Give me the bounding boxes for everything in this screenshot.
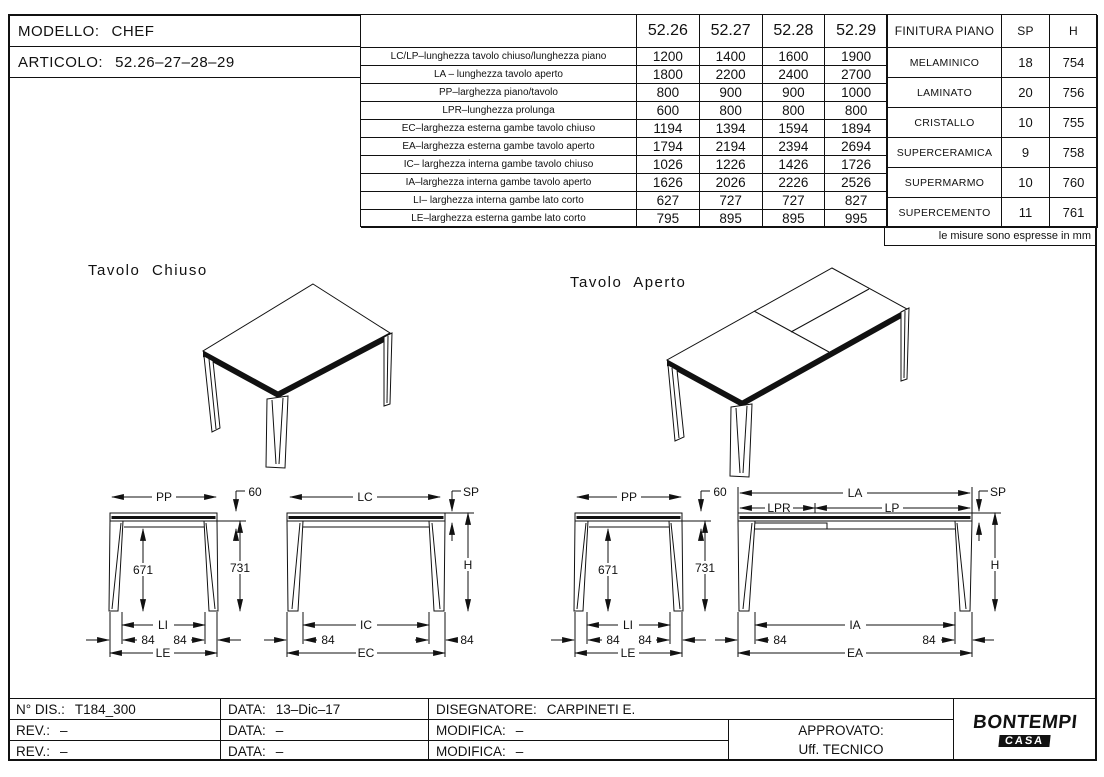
finish-name-cell: SUPERCERAMICA bbox=[888, 138, 1002, 168]
spec-value-cell: 1194 bbox=[637, 120, 700, 138]
finish-col-header: FINITURA PIANO bbox=[888, 15, 1002, 48]
date-label: DATA: bbox=[228, 702, 266, 717]
finish-col-header: SP bbox=[1002, 15, 1050, 48]
finish-sp-cell: 20 bbox=[1002, 78, 1050, 108]
spec-value-cell: 600 bbox=[637, 102, 700, 120]
spec-col-header: 52.29 bbox=[825, 15, 888, 48]
spec-row-label: LE–larghezza esterna gambe lato corto bbox=[361, 210, 637, 228]
spec-row-label: LC/LP–lunghezza tavolo chiuso/lunghezza … bbox=[361, 48, 637, 66]
spec-value-cell: 900 bbox=[763, 84, 826, 102]
spec-value-cell: 1200 bbox=[637, 48, 700, 66]
spec-row-label: PP–larghezza piano/tavolo bbox=[361, 84, 637, 102]
approved-cell: APPROVATO: Uff. TECNICO bbox=[729, 720, 953, 761]
spec-value-cell: 1394 bbox=[700, 120, 763, 138]
units-note: le misure sono espresse in mm bbox=[884, 227, 1097, 246]
spec-value-cell: 827 bbox=[825, 192, 888, 210]
finish-sp-cell: 10 bbox=[1002, 168, 1050, 198]
articolo-label: ARTICOLO: bbox=[18, 54, 103, 71]
modello-value: CHEF bbox=[112, 23, 155, 40]
open-table-title: Tavolo Aperto bbox=[570, 274, 686, 291]
finish-h-cell: 755 bbox=[1050, 108, 1098, 138]
finish-sp-cell: 9 bbox=[1002, 138, 1050, 168]
date-cell: DATA: 13–Dic–17 bbox=[222, 699, 428, 719]
spec-value-cell: 1800 bbox=[637, 66, 700, 84]
rev1-cell: REV.: – bbox=[10, 720, 220, 740]
finish-col-header: H bbox=[1050, 15, 1098, 48]
spec-header-empty bbox=[361, 15, 637, 48]
drawing-number-cell: N° DIS.: T184_300 bbox=[10, 699, 220, 719]
spec-value-cell: 1400 bbox=[700, 48, 763, 66]
brand-logo: BONTEMPI CASA bbox=[954, 699, 1096, 760]
finish-sp-cell: 18 bbox=[1002, 48, 1050, 78]
finish-name-cell: CRISTALLO bbox=[888, 108, 1002, 138]
spec-value-cell: 2526 bbox=[825, 174, 888, 192]
finish-h-cell: 760 bbox=[1050, 168, 1098, 198]
spec-value-cell: 2200 bbox=[700, 66, 763, 84]
logo-bontempi-text: BONTEMPI bbox=[972, 712, 1079, 734]
designer-cell: DISEGNATORE: CARPINETI E. bbox=[430, 699, 950, 719]
spec-value-cell: 627 bbox=[637, 192, 700, 210]
finish-table: FINITURA PIANOSPHMELAMINICO18754LAMINATO… bbox=[887, 14, 1097, 227]
spec-value-cell: 2400 bbox=[763, 66, 826, 84]
spec-value-cell: 895 bbox=[700, 210, 763, 228]
closed-table-title: Tavolo Chiuso bbox=[88, 262, 208, 279]
spec-value-cell: 800 bbox=[825, 102, 888, 120]
spec-value-cell: 2026 bbox=[700, 174, 763, 192]
spec-value-cell: 2194 bbox=[700, 138, 763, 156]
spec-col-header: 52.28 bbox=[763, 15, 826, 48]
rev1-modifica-cell: MODIFICA: – bbox=[430, 720, 726, 740]
modello-label: MODELLO: bbox=[18, 23, 100, 40]
spec-value-cell: 795 bbox=[637, 210, 700, 228]
spec-value-cell: 895 bbox=[763, 210, 826, 228]
finish-h-cell: 756 bbox=[1050, 78, 1098, 108]
finish-h-cell: 758 bbox=[1050, 138, 1098, 168]
spec-row-label: EA–larghezza esterna gambe tavolo aperto bbox=[361, 138, 637, 156]
spec-value-cell: 800 bbox=[700, 102, 763, 120]
spec-value-cell: 727 bbox=[700, 192, 763, 210]
spec-value-cell: 1794 bbox=[637, 138, 700, 156]
finish-name-cell: MELAMINICO bbox=[888, 48, 1002, 78]
spec-row-label: LI– larghezza interna gambe lato corto bbox=[361, 192, 637, 210]
finish-sp-cell: 10 bbox=[1002, 108, 1050, 138]
designer-value: CARPINETI E. bbox=[547, 702, 636, 717]
spec-value-cell: 995 bbox=[825, 210, 888, 228]
spec-value-cell: 2226 bbox=[763, 174, 826, 192]
rev1-date-cell: DATA: – bbox=[222, 720, 428, 740]
drawing-sheet: MODELLO: CHEF ARTICOLO: 52.26–27–28–29 5… bbox=[0, 0, 1104, 777]
finish-h-cell: 761 bbox=[1050, 198, 1098, 228]
spec-row-label: LPR–lunghezza prolunga bbox=[361, 102, 637, 120]
spec-value-cell: 1426 bbox=[763, 156, 826, 174]
spec-value-cell: 1026 bbox=[637, 156, 700, 174]
spec-value-cell: 2394 bbox=[763, 138, 826, 156]
spec-value-cell: 800 bbox=[763, 102, 826, 120]
designer-label: DISEGNATORE: bbox=[436, 702, 537, 717]
articolo-value: 52.26–27–28–29 bbox=[115, 54, 235, 71]
ndis-value: T184_300 bbox=[75, 702, 136, 717]
spec-value-cell: 1900 bbox=[825, 48, 888, 66]
spec-value-cell: 1000 bbox=[825, 84, 888, 102]
spec-value-cell: 1726 bbox=[825, 156, 888, 174]
ndis-label: N° DIS.: bbox=[16, 702, 65, 717]
finish-name-cell: LAMINATO bbox=[888, 78, 1002, 108]
finish-h-cell: 754 bbox=[1050, 48, 1098, 78]
spec-row-label: LA – lunghezza tavolo aperto bbox=[361, 66, 637, 84]
spec-row-label: IC– larghezza interna gambe tavolo chius… bbox=[361, 156, 637, 174]
logo-casa-text: CASA bbox=[999, 735, 1051, 747]
rev2-date-cell: DATA: – bbox=[222, 741, 428, 761]
spec-value-cell: 1600 bbox=[763, 48, 826, 66]
approvato-label: APPROVATO: bbox=[798, 722, 884, 740]
spec-row-label: IA–larghezza interna gambe tavolo aperto bbox=[361, 174, 637, 192]
spec-col-header: 52.26 bbox=[637, 15, 700, 48]
spec-value-cell: 2700 bbox=[825, 66, 888, 84]
spec-row-label: EC–larghezza esterna gambe tavolo chiuso bbox=[361, 120, 637, 138]
finish-name-cell: SUPERCEMENTO bbox=[888, 198, 1002, 228]
spec-value-cell: 727 bbox=[763, 192, 826, 210]
spec-value-cell: 1894 bbox=[825, 120, 888, 138]
spec-value-cell: 1594 bbox=[763, 120, 826, 138]
articolo-box: ARTICOLO: 52.26–27–28–29 bbox=[10, 47, 360, 78]
spec-value-cell: 800 bbox=[637, 84, 700, 102]
finish-sp-cell: 11 bbox=[1002, 198, 1050, 228]
spec-value-cell: 1226 bbox=[700, 156, 763, 174]
rev2-cell: REV.: – bbox=[10, 741, 220, 761]
spec-value-cell: 900 bbox=[700, 84, 763, 102]
spec-table: 52.2652.2752.2852.29LC/LP–lunghezza tavo… bbox=[360, 14, 887, 227]
spec-value-cell: 2694 bbox=[825, 138, 888, 156]
spec-col-header: 52.27 bbox=[700, 15, 763, 48]
finish-name-cell: SUPERMARMO bbox=[888, 168, 1002, 198]
spec-value-cell: 1626 bbox=[637, 174, 700, 192]
modello-box: MODELLO: CHEF bbox=[10, 16, 360, 47]
date-value: 13–Dic–17 bbox=[276, 702, 341, 717]
approvato-office: Uff. TECNICO bbox=[798, 741, 883, 759]
rev2-modifica-cell: MODIFICA: – bbox=[430, 741, 726, 761]
